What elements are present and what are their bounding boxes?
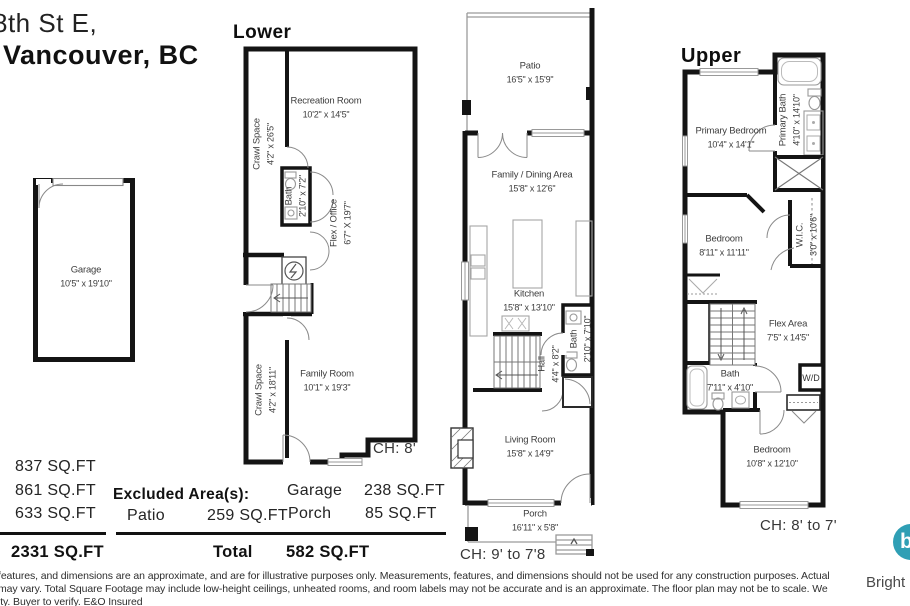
lower-windows [328,459,362,466]
room-label-living-room: Living Room15'8" x 14'9" [505,435,556,460]
total-rule-left [0,532,106,535]
excluded-porch-value: 85 SQ.FT [365,505,437,523]
floor-plan-page: 8th St E, Vancouver, BC Lower Main Upper [0,0,910,606]
room-label-flex-office: Flex / Office6'7" X 19'7" [329,199,354,247]
room-label-flex-area: Flex Area7'5" x 14'5" [767,319,809,344]
garage-door [53,179,123,186]
upper-sqft: 633 SQ.FT [15,505,96,523]
main-floor-plan [450,8,615,562]
room-label-family-room: Family Room10'1" x 19'3" [300,369,354,394]
room-label-wic: W.I.C.3'0" x 10'6" [795,214,820,256]
excluded-areas-title: Excluded Area(s): [113,486,249,504]
upper-stairs [710,304,755,365]
excluded-total-label: Total [213,543,253,562]
address-line-1: 8th St E, [0,8,97,39]
room-label-bedroom-mid: Bedroom8'11" x 11'11" [699,234,749,259]
porch-post [465,527,478,541]
main-closet [563,377,592,407]
room-label-garage: Garage10'5" x 19'10" [60,265,112,290]
disclaimer-line-1: features, and dimensions are an approxim… [0,570,830,582]
room-label-recreation: Recreation Room10'2" x 14'5" [291,96,362,121]
room-label-washer-dryer: W/D [802,373,820,383]
room-label-primary-bath: Primary Bath4'10" x 14'10" [778,94,803,147]
room-label-hall: Hall4'4" x 8'2" [537,345,562,382]
brand-logo-text: Bright [866,574,905,591]
excluded-total-value: 582 SQ.FT [286,543,369,562]
main-ceiling-height: CH: 9' to 7'8 [460,546,546,563]
room-label-upper-bath: Bath7'11" x 4'10" [707,369,753,394]
room-label-crawl-space-top: Crawl Space4'2" x 26'5" [252,118,277,170]
brand-logo-icon: b [893,524,910,560]
excluded-porch-label: Porch [288,505,331,523]
lower-stairs [271,284,311,312]
lower-plan-title: Lower [233,22,291,44]
room-label-main-bath: Bath2'10" x 7'10" [569,316,594,363]
main-stairs [494,336,540,388]
address-line-2: Vancouver, BC [3,40,199,71]
disclaimer-line-2: may vary. Total Square Footage may inclu… [0,583,828,595]
room-label-lower-bath: Bath2'10" x 7'2" [284,175,309,217]
disclaimer-line-3: ity. Buyer to verify. E&O Insured [0,596,143,606]
room-label-primary-bedroom: Primary Bedroom10'4" x 14'1" [696,126,767,151]
excluded-garage-label: Garage [287,482,342,500]
room-label-family-dining: Family / Dining Area15'8" x 12'6" [491,170,572,195]
room-label-crawl-space-bottom: Crawl Space4'2" x 18'11" [254,364,279,416]
excluded-patio-value: 259 SQ.FT [207,507,288,525]
main-sqft: 861 SQ.FT [15,482,96,500]
room-label-patio: Patio16'5" x 15'9" [507,61,554,86]
upper-ceiling-height: CH: 8' to 7' [760,517,837,534]
room-label-porch: Porch16'11" x 5'8" [512,509,558,534]
room-label-bedroom-rear: Bedroom10'8" x 12'10" [746,445,798,470]
fireplace [451,428,473,468]
total-sqft: 2331 SQ.FT [11,543,104,562]
lower-sqft: 837 SQ.FT [15,458,96,476]
lower-ceiling-height: CH: 8' [373,440,416,457]
x-closet [775,157,823,190]
excluded-patio-label: Patio [127,507,165,525]
excluded-garage-value: 238 SQ.FT [364,482,445,500]
upper-floor-plan [676,48,836,512]
excluded-total-rule [116,532,446,535]
room-label-kitchen: Kitchen15'8" x 13'10" [503,289,555,314]
porch-post-right [586,549,594,556]
